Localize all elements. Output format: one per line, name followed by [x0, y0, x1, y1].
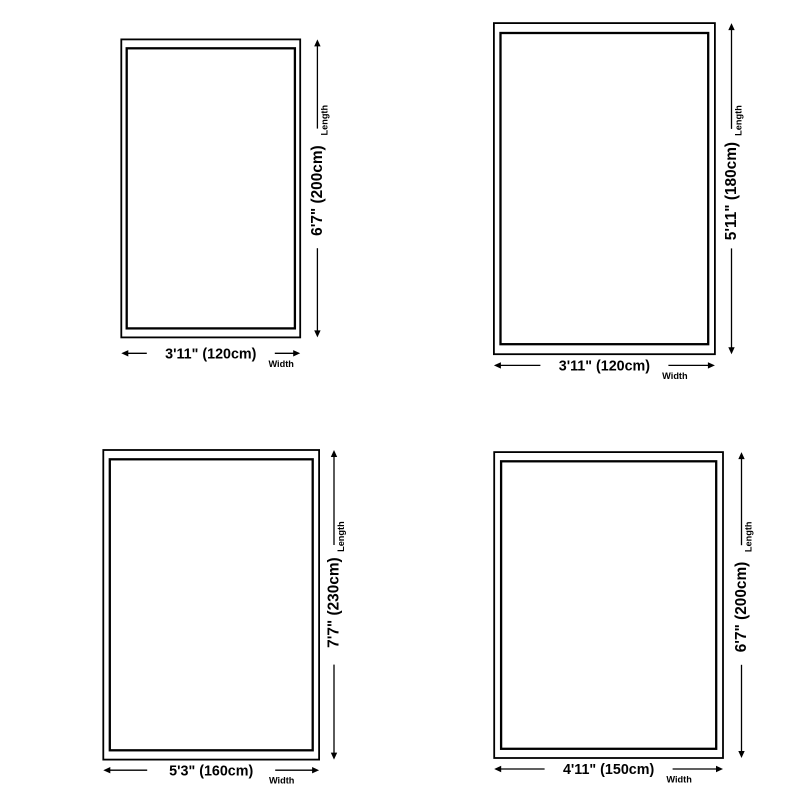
svg-text:Width: Width — [662, 371, 688, 381]
svg-text:7'7" (230cm): 7'7" (230cm) — [325, 557, 342, 648]
svg-text:Width: Width — [666, 775, 692, 785]
svg-text:Width: Width — [268, 359, 294, 369]
svg-text:3'11" (120cm): 3'11" (120cm) — [165, 347, 256, 363]
svg-text:Length: Length — [734, 105, 744, 136]
svg-text:Length: Length — [744, 521, 754, 552]
svg-text:Length: Length — [336, 521, 346, 552]
svg-text:5'3" (160cm): 5'3" (160cm) — [169, 763, 253, 779]
svg-text:6'7" (200cm): 6'7" (200cm) — [733, 562, 750, 653]
svg-text:6'7" (200cm): 6'7" (200cm) — [309, 145, 326, 236]
svg-text:Width: Width — [269, 776, 295, 786]
svg-text:4'11" (150cm): 4'11" (150cm) — [563, 762, 654, 778]
svg-text:3'11" (120cm): 3'11" (120cm) — [559, 359, 650, 375]
svg-text:Length: Length — [319, 105, 329, 136]
svg-text:5'11" (180cm): 5'11" (180cm) — [723, 142, 740, 240]
